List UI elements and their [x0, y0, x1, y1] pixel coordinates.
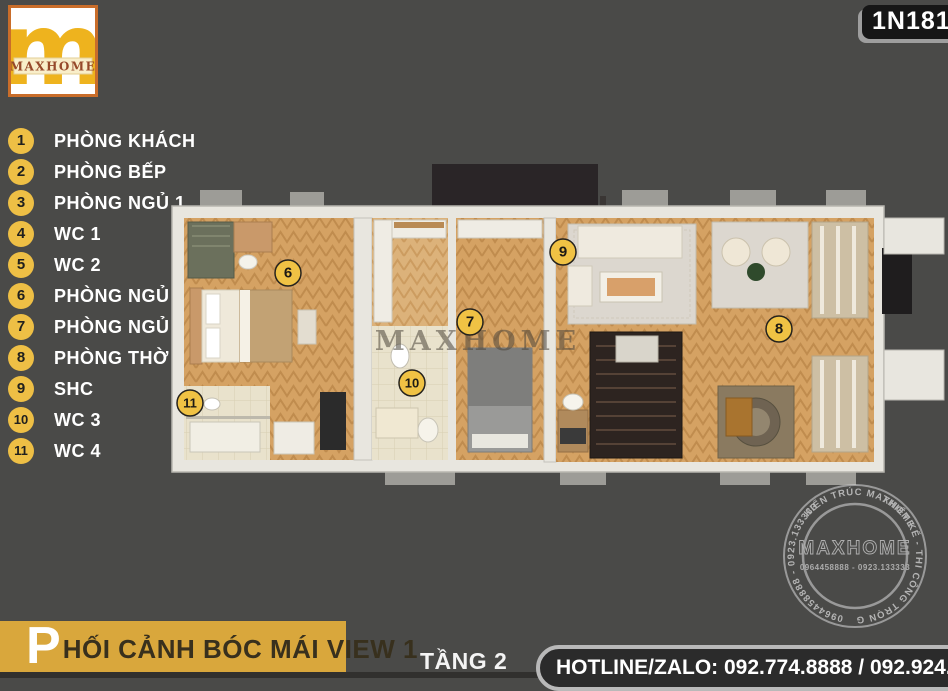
- tea-corner: [712, 222, 808, 308]
- bench: [298, 310, 316, 344]
- legend-number-badge: 11: [8, 438, 34, 464]
- sofa: [578, 226, 682, 258]
- floor-label: TẦNG 2: [420, 648, 507, 675]
- sofa-set: [568, 224, 696, 324]
- staircase: [590, 332, 682, 458]
- plan-marker-7: 7: [457, 309, 483, 335]
- altar-area: [718, 386, 794, 458]
- logo-monogram-m: m: [11, 8, 95, 94]
- legend-label: WC 4: [54, 441, 101, 462]
- legend-label: PHÒNG KHÁCH: [54, 131, 196, 152]
- plan-marker-7-num: 7: [466, 314, 474, 331]
- right-balcony-pillars: [882, 218, 944, 400]
- legend-label: WC 2: [54, 255, 101, 276]
- stair-landing: [616, 336, 658, 362]
- legend-label: PHÒNG THỜ: [54, 348, 169, 369]
- stamp-center-phones: 0964458888 - 0923.133333: [800, 563, 910, 572]
- legend-number-badge: 9: [8, 376, 34, 402]
- legend-label: PHÒNG NGỦ 2: [54, 286, 186, 307]
- maxhome-stamp-watermark: KIẾN TRÚC MAXHOME THIẾT KẾ - THI CÔNG TR…: [779, 480, 931, 632]
- plan-marker-8-num: 8: [775, 321, 783, 338]
- glass-partition: [186, 416, 270, 419]
- legend-label: PHÒNG BẾP: [54, 162, 167, 183]
- plan-marker-6: 6: [275, 260, 301, 286]
- cabinet: [274, 422, 314, 454]
- plan-marker-9-num: 9: [559, 244, 567, 261]
- bathtub: [190, 422, 260, 452]
- legend-number-badge: 6: [8, 283, 34, 309]
- wardrobe-top: [458, 220, 542, 238]
- bed-room6: [190, 288, 292, 364]
- legend-number-badge: 4: [8, 221, 34, 247]
- legend-number-badge: 7: [8, 314, 34, 340]
- tv-cabinet: [320, 392, 346, 450]
- plan-marker-8: 8: [766, 316, 792, 342]
- legend-label: WC 1: [54, 224, 101, 245]
- common-area: [556, 218, 874, 462]
- vanity: [376, 408, 418, 438]
- legend-number-badge: 8: [8, 345, 34, 371]
- plan-marker-6-num: 6: [284, 265, 292, 282]
- legend-label: PHÒNG NGỦ 3: [54, 317, 186, 338]
- bed-room7: [468, 348, 532, 452]
- view-title-bar: P HỐI CẢNH BÓC MÁI VIEW 1: [0, 621, 346, 672]
- skylight-void: [432, 164, 598, 206]
- poster-canvas: { "header": { "logo_text": "MAXHOME", "l…: [0, 0, 948, 678]
- legend-number-badge: 10: [8, 407, 34, 433]
- legend-label: WC 3: [54, 410, 101, 431]
- project-code-badge: 1N1812: [862, 5, 948, 39]
- plan-marker-11-num: 11: [183, 396, 197, 411]
- pouf: [239, 255, 257, 269]
- tv-nook: [270, 386, 354, 460]
- view-title-initial: P: [26, 621, 61, 672]
- legend-number-badge: 5: [8, 252, 34, 278]
- closet-corner: [372, 218, 448, 326]
- maxhome-logo-art: m MAXHOME: [11, 8, 95, 94]
- floor-plan-render: MAXHOME 6 7 8 9 10 11: [170, 160, 948, 490]
- room-bedroom2: [184, 218, 354, 386]
- maxhome-logo: m MAXHOME: [8, 5, 98, 97]
- view-title-text: HỐI CẢNH BÓC MÁI VIEW 1: [63, 634, 418, 665]
- legend-label: SHC: [54, 379, 94, 400]
- plan-marker-10-num: 10: [405, 376, 419, 391]
- logo-brand-text: MAXHOME: [11, 60, 95, 74]
- legend-number-badge: 3: [8, 190, 34, 216]
- sink: [204, 398, 220, 410]
- plan-marker-9: 9: [550, 239, 576, 265]
- hotline-banner: HOTLINE/ZALO: 092.774.8888 / 092.924.555…: [536, 645, 948, 691]
- plan-marker-10: 10: [399, 370, 425, 396]
- laundry-basket: [418, 418, 438, 442]
- wardrobe: [188, 222, 234, 278]
- altar-table: [726, 398, 752, 436]
- stamp-center-brand: MAXHOME: [798, 538, 911, 559]
- legend-number-badge: 1: [8, 128, 34, 154]
- dresser: [234, 222, 272, 252]
- armchair: [568, 266, 592, 306]
- legend-label: PHÒNG NGỦ 1: [54, 193, 186, 214]
- interior-wall: [354, 218, 372, 460]
- legend-item-1: 1 PHÒNG KHÁCH: [8, 128, 208, 154]
- plant: [747, 263, 765, 281]
- plan-marker-11: 11: [177, 390, 203, 416]
- legend-number-badge: 2: [8, 159, 34, 185]
